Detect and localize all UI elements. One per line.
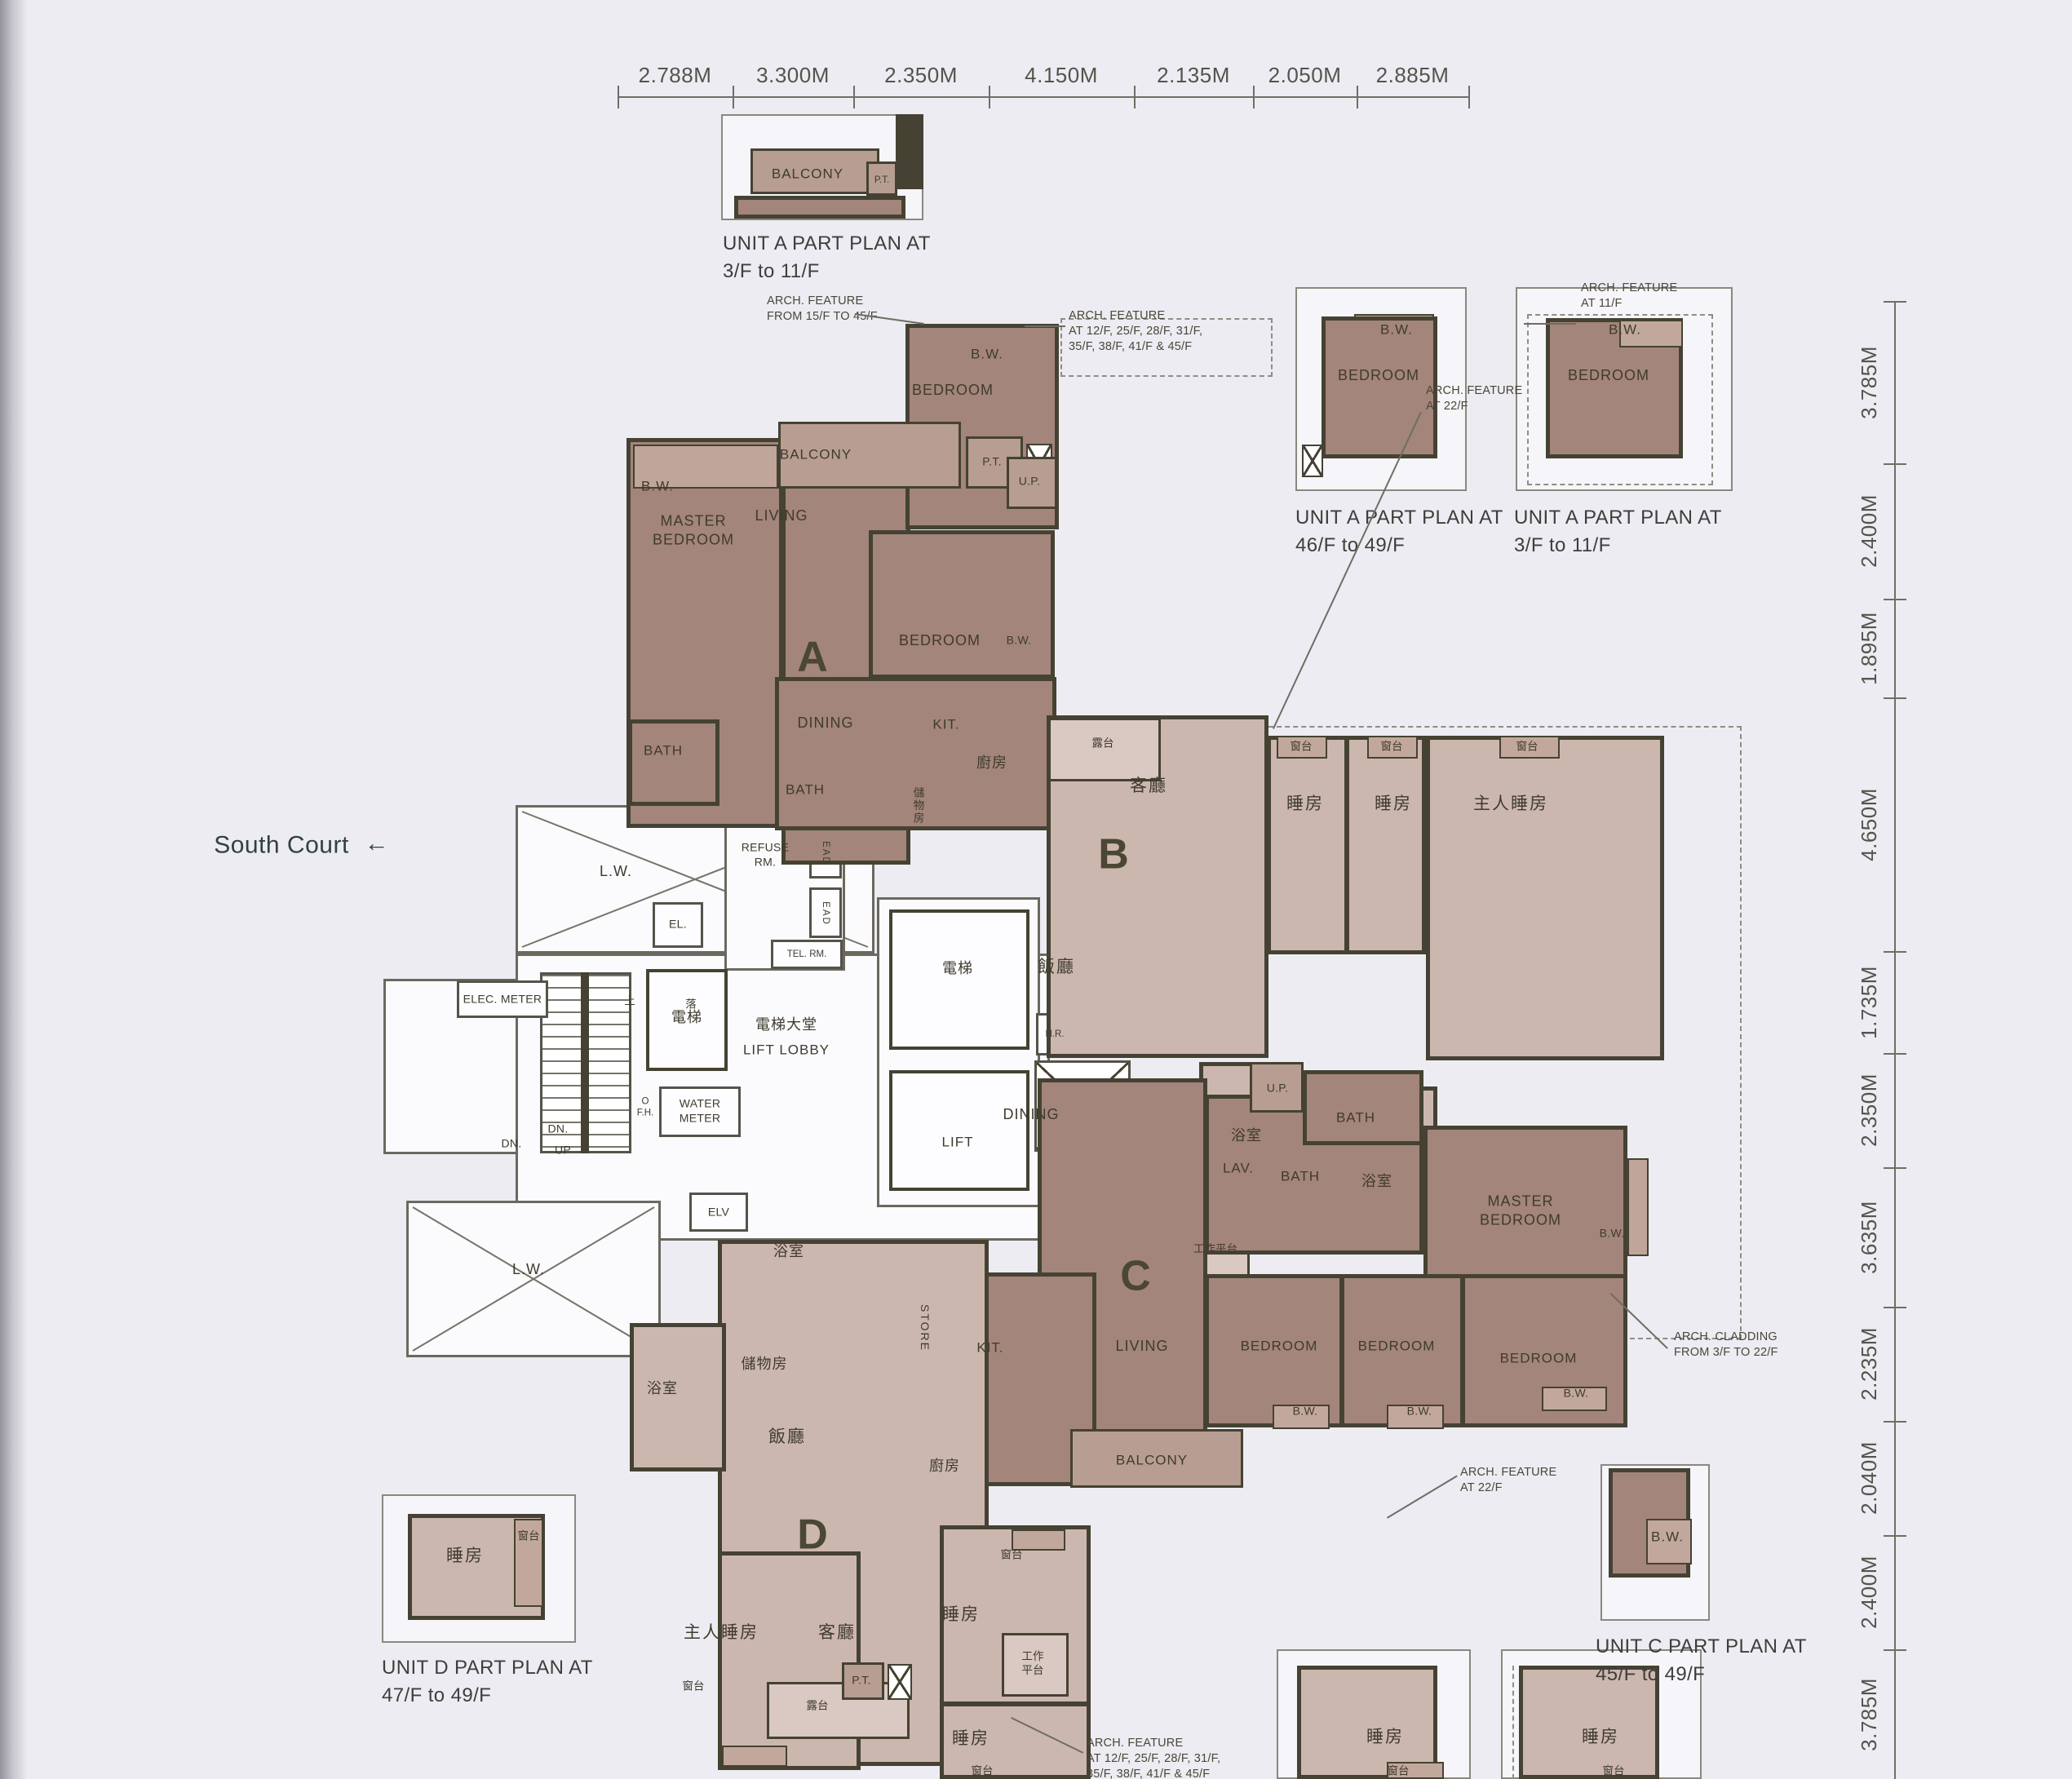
unit-c-master-bw-label: B.W.: [1600, 1226, 1625, 1241]
unit-b-dash-right: [1740, 726, 1742, 1339]
right-ruler-label-8: 2.040M: [1856, 1441, 1883, 1515]
unit-c-master-bw-strip: [1627, 1158, 1649, 1256]
unit-c-bath-top: [1303, 1070, 1423, 1145]
unit-a-letter: A: [797, 631, 828, 684]
unit-b-bay2-label: 窗台: [1381, 741, 1403, 755]
inset-b2-bay-label: 窗台: [1603, 1765, 1625, 1779]
unit-a-bw-label: B.W.: [971, 345, 1003, 362]
elec-meter-label: ELEC. METER: [463, 992, 542, 1007]
unit-b-master-bedroom: [1426, 736, 1664, 1060]
right-ruler-label-6: 3.635M: [1856, 1201, 1883, 1274]
unit-d-bed1-bay: [1012, 1529, 1065, 1551]
top-ruler-tick-1: [733, 86, 734, 108]
water-meter-label: WATER METER: [680, 1097, 721, 1126]
unit-c-dining-label: DINING: [1003, 1105, 1060, 1124]
lift-label: LIFT: [942, 1133, 974, 1150]
refuse-room-label: REFUSE RM.: [742, 841, 790, 870]
inset-a3-caption: UNIT A PART PLAN AT 3/F to 11/F: [1514, 504, 1722, 559]
unit-d-kitchen-label: 廚房: [929, 1457, 960, 1476]
fire-hydrant-label: O F.H.: [637, 1096, 653, 1120]
unit-a-kitchen-label: KIT.: [932, 715, 959, 732]
unit-a-bath-label: BATH: [644, 741, 683, 759]
inset-b1-bay-label: 窗台: [1388, 1765, 1410, 1779]
unit-d-master-bay: [722, 1746, 787, 1767]
right-ruler-line: [1894, 301, 1896, 1779]
inset-bottom-2-dash: [1512, 1666, 1514, 1779]
lw-lower-label: L.W.: [512, 1260, 545, 1279]
unit-d-letter: D: [797, 1509, 828, 1562]
right-ruler-tick-5: [1884, 1053, 1906, 1055]
arch-feature-15-45-note: ARCH. FEATURE FROM 15/F TO 45/F: [767, 294, 878, 325]
inset-d-bay-label: 窗台: [518, 1530, 540, 1544]
elv-label: ELV: [708, 1205, 729, 1219]
south-court-arrow: ←: [365, 828, 390, 859]
arch-cladding-note: ARCH. CLADDING FROM 3/F TO 22/F: [1674, 1330, 1778, 1361]
unit-b-utility-label: 工作平台: [1193, 1243, 1237, 1257]
ead-label-1: EAD: [820, 841, 831, 865]
right-ruler-label-5: 2.350M: [1856, 1073, 1883, 1147]
unit-d-bed2-bay-label: 窗台: [972, 1765, 994, 1779]
south-court-label: South Court: [214, 830, 349, 861]
right-ruler-tick-2: [1884, 599, 1906, 600]
unit-d-bath2-label: 浴室: [647, 1379, 678, 1398]
right-ruler-label-3: 4.650M: [1856, 788, 1883, 861]
unit-b-dash-top: [1268, 726, 1742, 728]
right-ruler-tick-3: [1884, 697, 1906, 699]
unit-c-living-label: LIVING: [1115, 1337, 1168, 1356]
arch-feature-22-note-top: ARCH. FEATURE AT 22/F: [1426, 383, 1522, 414]
unit-b-bay3-label: 窗台: [1516, 741, 1539, 755]
right-ruler-tick-6: [1884, 1167, 1906, 1169]
right-ruler-tick-0: [1884, 301, 1906, 303]
inset-a46-caption: UNIT A PART PLAN AT 46/F to 49/F: [1295, 504, 1503, 559]
arch-feature-11-note: ARCH. FEATURE AT 11/F: [1581, 281, 1677, 312]
unit-c-bed-divider-2: [1460, 1277, 1465, 1425]
stairs-up-cjk-label: 上: [624, 995, 635, 1009]
right-ruler-tick-1: [1884, 463, 1906, 465]
unit-c-up-label: U.P.: [1267, 1081, 1289, 1095]
lw-upper-label: L.W.: [600, 862, 632, 881]
unit-a-pt-label: P.T.: [982, 454, 1002, 469]
arch-feature-12-45-note: ARCH. FEATURE AT 12/F, 25/F, 28/F, 31/F,…: [1069, 308, 1202, 355]
unit-c-kitchen-label: KIT.: [976, 1339, 1003, 1356]
top-ruler-tick-5: [1253, 86, 1255, 108]
top-ruler-tick-0: [618, 86, 619, 108]
staircase-spine: [581, 972, 589, 1153]
unit-c-balcony-label: BALCONY: [1116, 1451, 1188, 1468]
unit-d-bed1-bay-label: 窗台: [1001, 1549, 1023, 1563]
inset-a3-bedroom-label: BEDROOM: [1568, 366, 1649, 385]
top-ruler-line: [618, 96, 1468, 98]
unit-a-bedroom-right-label: BEDROOM: [899, 631, 981, 650]
unit-b-living-label: 客廳: [1130, 776, 1167, 797]
unit-d-pt-label: P.T.: [852, 1673, 871, 1688]
top-ruler-tick-4: [1134, 86, 1136, 108]
unit-a-living-label: LIVING: [755, 507, 808, 525]
floor-plan-page: South Court←B.W.BEDROOMBALCONYP.T.B.W.MA…: [0, 0, 2072, 1779]
right-ruler-tick-7: [1884, 1307, 1906, 1308]
top-ruler-label-2: 2.350M: [884, 62, 958, 89]
unit-b-bedroom2-label: 睡房: [1375, 794, 1412, 815]
unit-c-bedroom3-label: BEDROOM: [1500, 1349, 1578, 1366]
leader-line-5: [1387, 1475, 1458, 1518]
scan-edge-shadow: [0, 0, 28, 1779]
inset-top-band: [734, 196, 905, 219]
unit-a-up-label: U.P.: [1019, 474, 1041, 489]
right-ruler-label-1: 2.400M: [1856, 494, 1883, 568]
inset-b1-bedroom-label: 睡房: [1366, 1727, 1404, 1748]
hose-reel-label: H.R.: [1046, 1029, 1065, 1040]
unit-d-bedroom1-label: 睡房: [942, 1604, 980, 1626]
top-ruler-tick-7: [1468, 86, 1470, 108]
unit-a-kitchen-cjk-label: 廚房: [976, 754, 1007, 772]
top-ruler-tick-2: [853, 86, 855, 108]
inset-d-bedroom-label: 睡房: [446, 1546, 484, 1567]
unit-a-balcony-label: BALCONY: [780, 445, 852, 462]
unit-d-utility-label: 工作 平台: [1022, 1650, 1044, 1678]
unit-d-balcony-label: 露台: [807, 1700, 829, 1714]
top-ruler-label-5: 2.050M: [1268, 62, 1342, 89]
el-label: EL.: [669, 917, 687, 932]
right-ruler-label-4: 1.735M: [1856, 966, 1883, 1039]
unit-b-bath1-label: 浴室: [1231, 1126, 1262, 1145]
unit-d-bath-wing: [630, 1323, 726, 1471]
unit-d-bed-divider: [940, 1702, 1091, 1706]
ead-label-2: EAD: [820, 901, 831, 926]
unit-c-bw3-label: B.W.: [1564, 1386, 1589, 1401]
top-ruler-tick-6: [1357, 86, 1358, 108]
unit-a-master-bedroom-label: MASTER BEDROOM: [653, 512, 734, 549]
unit-b-bedroom1-label: 睡房: [1286, 794, 1324, 815]
inset-top-caption: UNIT A PART PLAN AT 3/F to 11/F: [723, 230, 931, 285]
inset-a46-bedroom: [1322, 316, 1437, 458]
right-ruler-label-0: 3.785M: [1856, 346, 1883, 419]
inset-a3-bw-label: B.W.: [1609, 321, 1641, 338]
unit-c-bw1-label: B.W.: [1293, 1404, 1318, 1418]
unit-a-master-bw-label: B.W.: [641, 477, 674, 494]
lift-left-label: 電梯: [671, 1008, 702, 1027]
unit-a-bath: [628, 719, 719, 806]
lift-bottom-shaft: [889, 1070, 1029, 1191]
unit-c-lav-label: LAV.: [1223, 1159, 1254, 1176]
right-ruler-tick-4: [1884, 951, 1906, 953]
unit-b-balcony-label: 露台: [1092, 737, 1114, 751]
top-ruler-label-1: 3.300M: [756, 62, 830, 89]
unit-c-bedroom1-label: BEDROOM: [1241, 1337, 1318, 1354]
unit-d-dining-label: 飯廳: [768, 1427, 806, 1448]
leader-line-1: [1025, 325, 1065, 327]
inset-a46-window-box: [1302, 445, 1323, 477]
top-ruler-tick-3: [989, 86, 990, 108]
right-ruler-label-2: 1.895M: [1856, 612, 1883, 685]
inset-a46-bedroom-label: BEDROOM: [1338, 366, 1419, 385]
unit-d-living-label: 客廳: [818, 1622, 856, 1644]
inset-top-balcony-label: BALCONY: [772, 165, 843, 182]
lift-right-label: 電梯: [942, 959, 973, 978]
unit-c-bw2-label: B.W.: [1407, 1404, 1432, 1418]
inset-a46-bw-label: B.W.: [1380, 321, 1413, 338]
arch-feature-12-45-note-bottom: ARCH. FEATURE AT 12/F, 25/F, 28/F, 31/F,…: [1087, 1736, 1220, 1779]
unit-a-bath2-label: BATH: [786, 781, 825, 798]
unit-c-bath2-label: BATH: [1281, 1167, 1320, 1184]
inset-top-pt-label: P.T.: [874, 175, 889, 186]
unit-c-bedroom2-label: BEDROOM: [1358, 1337, 1436, 1354]
right-ruler-tick-9: [1884, 1535, 1906, 1537]
unit-a-bedroom-top-label: BEDROOM: [912, 381, 994, 400]
unit-a-store-label: 儲物房: [910, 787, 924, 825]
right-ruler-label-9: 2.400M: [1856, 1556, 1883, 1629]
unit-b-bedroom-divider: [1344, 738, 1349, 952]
stairs-up-label: UP: [555, 1143, 571, 1157]
lightwell-lower: [406, 1201, 661, 1357]
right-ruler-label-10: 3.785M: [1856, 1678, 1883, 1751]
unit-d-master-label: 主人睡房: [684, 1622, 759, 1644]
unit-a-dining-label: DINING: [798, 714, 854, 732]
unit-b-bay1-label: 窗台: [1291, 741, 1313, 755]
unit-d-master-bay-label: 窗台: [683, 1680, 705, 1694]
top-ruler-label-4: 2.135M: [1157, 62, 1230, 89]
unit-d-bedroom2-label: 睡房: [952, 1728, 990, 1750]
inset-b2-bedroom-label: 睡房: [1582, 1727, 1619, 1748]
unit-a-bedroom-right: [869, 530, 1055, 679]
unit-d-store-label: STORE: [917, 1304, 932, 1352]
tel-room-label: TEL. RM.: [787, 949, 827, 960]
unit-b-master-label: 主人睡房: [1473, 794, 1548, 815]
arch-feature-22-note-bottom: ARCH. FEATURE AT 22/F: [1460, 1465, 1556, 1496]
inset-c-bw-label: B.W.: [1651, 1528, 1684, 1545]
inset-c-caption: UNIT C PART PLAN AT 45/F to 49/F: [1596, 1633, 1807, 1688]
top-ruler-label-3: 4.150M: [1025, 62, 1098, 89]
lift-right-shaft: [889, 909, 1029, 1050]
top-ruler-label-0: 2.788M: [639, 62, 712, 89]
lift-lobby-cjk-label: 電梯大堂: [755, 1016, 817, 1034]
inset-top-wall: [896, 114, 923, 189]
stairs-dn-label: DN.: [547, 1122, 568, 1136]
lift-lobby-label: LIFT LOBBY: [743, 1041, 830, 1058]
top-ruler-label-6: 2.885M: [1376, 62, 1450, 89]
stairs-dn2-label: DN.: [501, 1136, 521, 1151]
unit-b-bath2-label: 浴室: [1361, 1172, 1392, 1191]
right-ruler-label-7: 2.235M: [1856, 1327, 1883, 1401]
unit-d-bath1-label: 浴室: [773, 1242, 804, 1261]
unit-a-bedroom-right-bw-label: B.W.: [1007, 633, 1032, 648]
unit-d-window-box: [888, 1664, 912, 1700]
unit-b-dining-label: 飯廳: [1038, 957, 1075, 978]
right-ruler-tick-10: [1884, 1649, 1906, 1651]
unit-b-letter: B: [1098, 829, 1129, 882]
unit-c-bath1-label: BATH: [1336, 1109, 1375, 1126]
unit-c-bed-divider-1: [1339, 1277, 1344, 1425]
inset-d-caption: UNIT D PART PLAN AT 47/F to 49/F: [382, 1654, 593, 1709]
unit-d-store-cjk-label: 儲物房: [742, 1355, 788, 1374]
leader-line-3: [1524, 323, 1576, 325]
unit-c-master-label: MASTER BEDROOM: [1480, 1193, 1561, 1229]
unit-c-letter: C: [1120, 1250, 1151, 1303]
right-ruler-tick-8: [1884, 1421, 1906, 1423]
